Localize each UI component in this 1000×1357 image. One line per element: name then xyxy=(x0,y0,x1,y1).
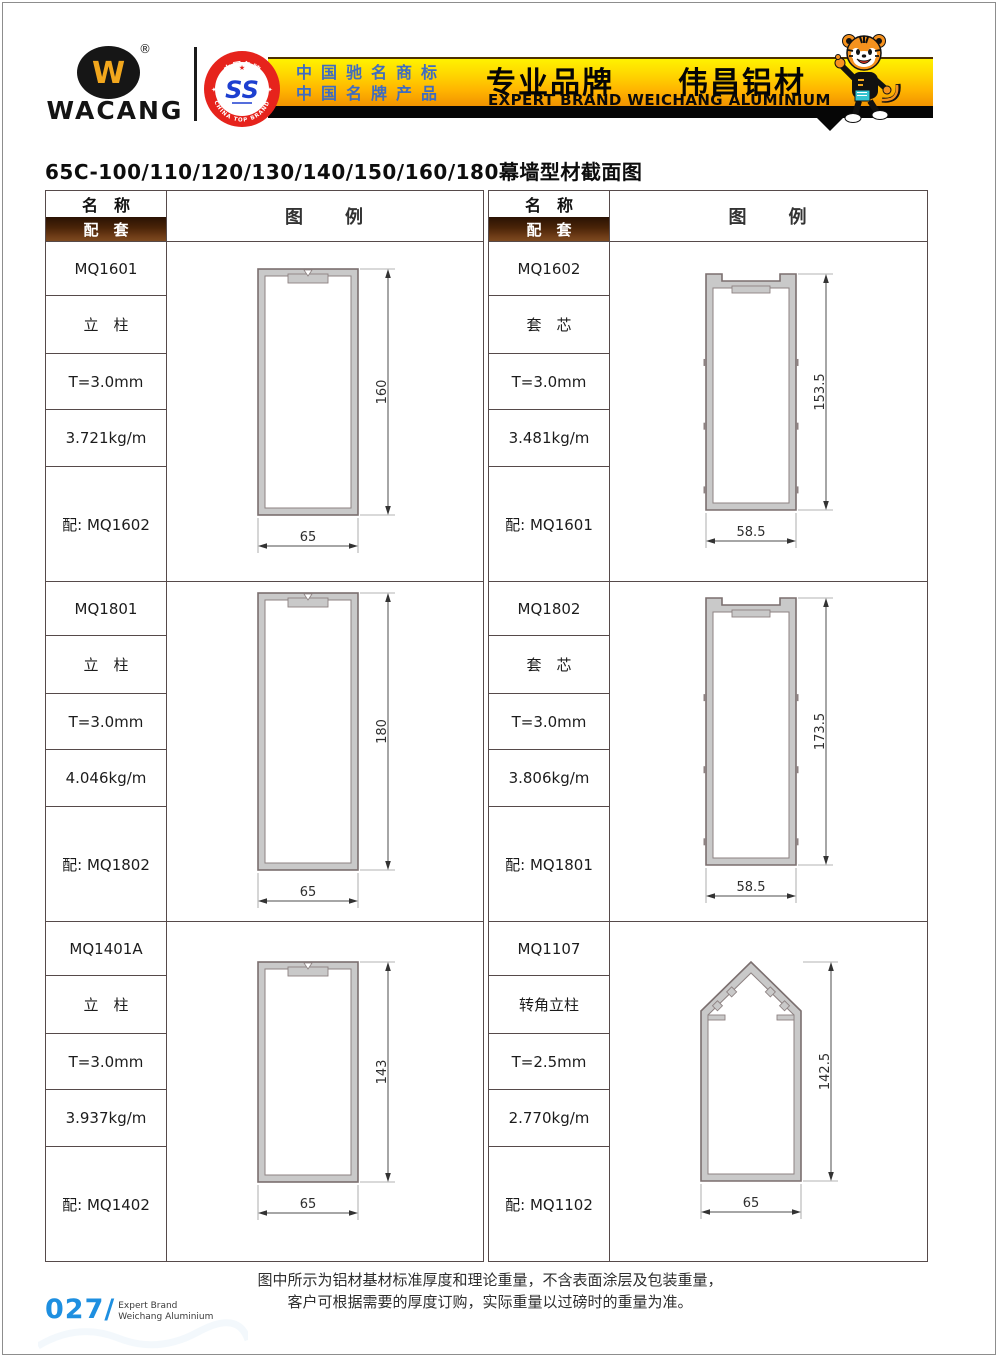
profile-match: 配: MQ1801 xyxy=(489,807,609,921)
profile-type: 转角立柱 xyxy=(489,976,609,1034)
profile-model: MQ1107 xyxy=(489,922,609,976)
svg-text:65: 65 xyxy=(299,1197,316,1212)
profile-table-left: 名 称 配 套 图 例 MQ1601 立 柱 T=3.0mm 3.721kg/m… xyxy=(45,190,484,1262)
page-brand-line1: Expert Brand xyxy=(118,1301,213,1312)
profile-match: 配: MQ1802 xyxy=(46,807,166,921)
catalog-page: { "header": { "logo_glyph": "W", "logo_r… xyxy=(0,0,1000,1357)
banner-credentials: 中国驰名商标 中国名牌产品 xyxy=(296,62,446,104)
profile-weight: 2.770kg/m xyxy=(489,1090,609,1147)
profile-model: MQ1601 xyxy=(46,242,166,296)
svg-text:58.5: 58.5 xyxy=(737,525,766,540)
column-header-match: 配 套 xyxy=(489,217,609,241)
profile-weight: 3.721kg/m xyxy=(46,410,166,467)
watermark-wave xyxy=(38,1318,248,1354)
banner-credential-line2: 中国名牌产品 xyxy=(296,83,446,104)
profile-section: MQ1601 立 柱 T=3.0mm 3.721kg/m 配: MQ1602 1… xyxy=(46,241,483,581)
svg-text:160: 160 xyxy=(375,379,390,404)
svg-text:65: 65 xyxy=(299,530,316,545)
column-header-name: 名 称 xyxy=(489,191,609,217)
profile-weight: 3.806kg/m xyxy=(489,750,609,807)
svg-text:58.5: 58.5 xyxy=(737,880,766,895)
profile-diagram: 142.5 65 xyxy=(610,922,927,1261)
banner-title-en: EXPERT BRAND WEICHANG ALUMINIUM xyxy=(488,91,831,109)
profile-thickness: T=3.0mm xyxy=(46,1034,166,1090)
svg-text:65: 65 xyxy=(299,885,316,900)
profile-match: 配: MQ1602 xyxy=(46,467,166,581)
profile-diagram-svg: 153.5 58.5 xyxy=(696,268,841,556)
profile-section: MQ1802 套 芯 T=3.0mm 3.806kg/m 配: MQ1801 1… xyxy=(489,581,927,921)
tiger-mascot-icon xyxy=(812,28,912,128)
profile-thickness: T=3.0mm xyxy=(46,354,166,410)
profile-section: MQ1107 转角立柱 T=2.5mm 2.770kg/m 配: MQ1102 … xyxy=(489,921,927,1261)
svg-text:180: 180 xyxy=(375,719,390,744)
wacang-logo-icon: W xyxy=(77,46,140,99)
svg-text:65: 65 xyxy=(743,1196,760,1211)
svg-text:✦: ✦ xyxy=(211,86,217,94)
profile-diagram-svg: 142.5 65 xyxy=(691,956,846,1227)
profile-type: 立 柱 xyxy=(46,636,166,694)
profile-diagram: 143 65 xyxy=(167,922,483,1261)
profile-diagram-svg: 160 65 xyxy=(248,263,403,561)
china-top-brand-badge-icon: 中国名牌 CHINA TOP BRAND ✦ ✦ ★ SS xyxy=(202,49,282,129)
header-divider xyxy=(194,47,197,121)
profile-thickness: T=3.0mm xyxy=(489,694,609,750)
profile-thickness: T=3.0mm xyxy=(46,694,166,750)
profile-thickness: T=3.0mm xyxy=(489,354,609,410)
profile-type: 立 柱 xyxy=(46,296,166,354)
profile-thickness: T=2.5mm xyxy=(489,1034,609,1090)
svg-text:★: ★ xyxy=(239,64,245,72)
profile-section: MQ1602 套 芯 T=3.0mm 3.481kg/m 配: MQ1601 1… xyxy=(489,241,927,581)
profile-table-right: 名 称 配 套 图 例 MQ1602 套 芯 T=3.0mm 3.481kg/m… xyxy=(488,190,928,1262)
column-header-diagram: 图 例 xyxy=(167,191,483,241)
profile-model: MQ1802 xyxy=(489,582,609,636)
table-header: 名 称 配 套 图 例 xyxy=(489,191,927,241)
profile-weight: 3.481kg/m xyxy=(489,410,609,467)
svg-text:✦: ✦ xyxy=(267,86,273,94)
profile-diagram: 153.5 58.5 xyxy=(610,242,927,581)
svg-text:143: 143 xyxy=(375,1059,390,1084)
profile-diagram-svg: 180 65 xyxy=(248,587,403,916)
column-header-diagram: 图 例 xyxy=(610,191,927,241)
profile-weight: 4.046kg/m xyxy=(46,750,166,807)
svg-text:173.5: 173.5 xyxy=(813,713,828,750)
page-title: 65C-100/110/120/130/140/150/160/180幕墙型材截… xyxy=(45,156,642,185)
profile-section: MQ1801 立 柱 T=3.0mm 4.046kg/m 配: MQ1802 1… xyxy=(46,581,483,921)
profile-type: 立 柱 xyxy=(46,976,166,1034)
table-header: 名 称 配 套 图 例 xyxy=(46,191,483,241)
column-header-name: 名 称 xyxy=(46,191,166,217)
logo-w-glyph: W xyxy=(92,59,125,89)
profile-model: MQ1801 xyxy=(46,582,166,636)
profile-type: 套 芯 xyxy=(489,296,609,354)
profile-weight: 3.937kg/m xyxy=(46,1090,166,1147)
profile-model: MQ1602 xyxy=(489,242,609,296)
profile-match: 配: MQ1601 xyxy=(489,467,609,581)
profile-diagram-svg: 143 65 xyxy=(248,956,403,1228)
profile-match: 配: MQ1402 xyxy=(46,1147,166,1261)
svg-text:142.5: 142.5 xyxy=(818,1053,833,1090)
profile-match: 配: MQ1102 xyxy=(489,1147,609,1261)
svg-text:153.5: 153.5 xyxy=(813,373,828,410)
profile-model: MQ1401A xyxy=(46,922,166,976)
registered-mark: ® xyxy=(139,42,151,56)
profile-diagram-svg: 173.5 58.5 xyxy=(696,592,841,911)
badge-glyph: SS xyxy=(225,76,259,104)
banner-credential-line1: 中国驰名商标 xyxy=(296,62,446,83)
profile-section: MQ1401A 立 柱 T=3.0mm 3.937kg/m 配: MQ1402 … xyxy=(46,921,483,1261)
profile-diagram: 173.5 58.5 xyxy=(610,582,927,921)
profile-type: 套 芯 xyxy=(489,636,609,694)
profile-diagram: 180 65 xyxy=(167,582,483,921)
profile-diagram: 160 65 xyxy=(167,242,483,581)
footer-note-line1: 图中所示为铝材基材标准厚度和理论重量，不含表面涂层及包装重量， xyxy=(45,1269,935,1291)
logo-wordmark: WACANG xyxy=(40,96,190,125)
column-header-match: 配 套 xyxy=(46,217,166,241)
